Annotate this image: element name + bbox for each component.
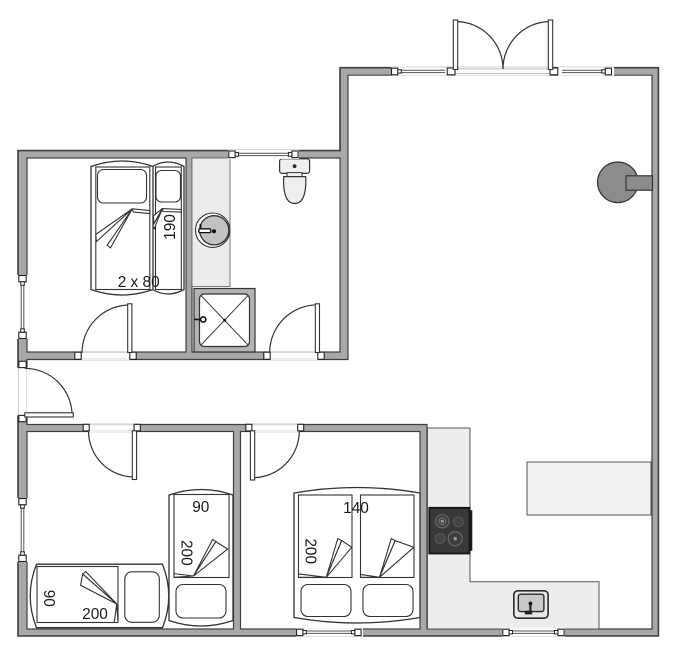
- svg-text:140: 140: [343, 500, 369, 517]
- svg-text:190: 190: [162, 214, 179, 240]
- svg-text:200: 200: [177, 540, 194, 566]
- svg-text:200: 200: [301, 538, 318, 564]
- svg-text:90: 90: [40, 590, 57, 607]
- svg-text:200: 200: [82, 606, 108, 623]
- svg-text:2 x 80: 2 x 80: [118, 274, 160, 291]
- svg-text:90: 90: [192, 499, 209, 516]
